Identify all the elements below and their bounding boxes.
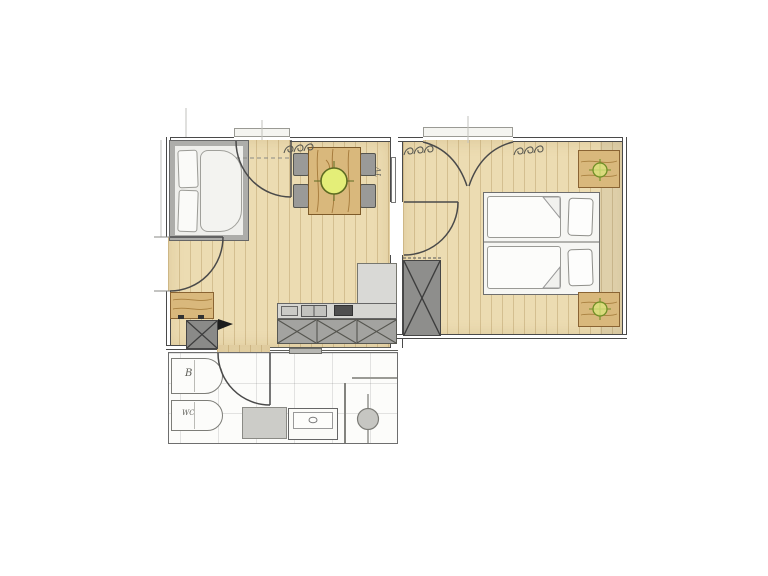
niche-mattress: [200, 150, 242, 232]
bathroom-half-wall-line: [352, 377, 397, 379]
bidet-label: B: [185, 368, 192, 379]
utility-box: [186, 320, 218, 349]
tv-unit: [391, 157, 396, 203]
kitchen-corner-unit: [357, 263, 397, 305]
washbasin: [293, 412, 333, 429]
wardrobe: [403, 260, 441, 336]
tv-label: TV: [375, 167, 383, 177]
dining-chair: [360, 184, 376, 208]
pillow-bottom-bed: [567, 249, 593, 287]
nightstand-top: [578, 150, 620, 188]
wooden-bench: [170, 292, 214, 319]
french-door-frame: [423, 127, 513, 137]
kitchen-cabinets: [277, 319, 397, 344]
bidet: [171, 358, 223, 394]
bathroom-mirror: [289, 348, 322, 354]
bidet-tank-line: [194, 360, 195, 392]
entrance-door-frame: [234, 128, 290, 137]
shower-partition: [344, 383, 346, 443]
dining-chair: [293, 184, 309, 208]
wall-bedroom-top-left: [398, 137, 423, 142]
shower-tray: [242, 407, 287, 439]
wall-top-living-right: [290, 137, 393, 142]
dining-chair: [293, 153, 309, 176]
floor-plan: TV B WC: [0, 0, 768, 576]
toilet-tank-line: [194, 402, 195, 429]
niche-pillow-top: [177, 150, 198, 189]
kitchen-sink: [301, 305, 327, 317]
niche-pillow-bottom: [177, 190, 198, 233]
sink-drainer: [281, 306, 298, 316]
duvet-bottom-bed: [487, 246, 561, 289]
dining-chair: [360, 153, 376, 176]
kitchen-stove: [334, 305, 353, 316]
toilet: [171, 400, 223, 431]
pillow-top-bed: [567, 198, 593, 237]
wall-bedroom-top-right: [513, 137, 627, 142]
wall-bedroom-right: [622, 137, 627, 337]
toilet-label: WC: [182, 409, 195, 417]
duvet-top-bed: [487, 196, 561, 238]
nightstand-bottom: [578, 292, 620, 327]
dining-table: [308, 147, 361, 215]
